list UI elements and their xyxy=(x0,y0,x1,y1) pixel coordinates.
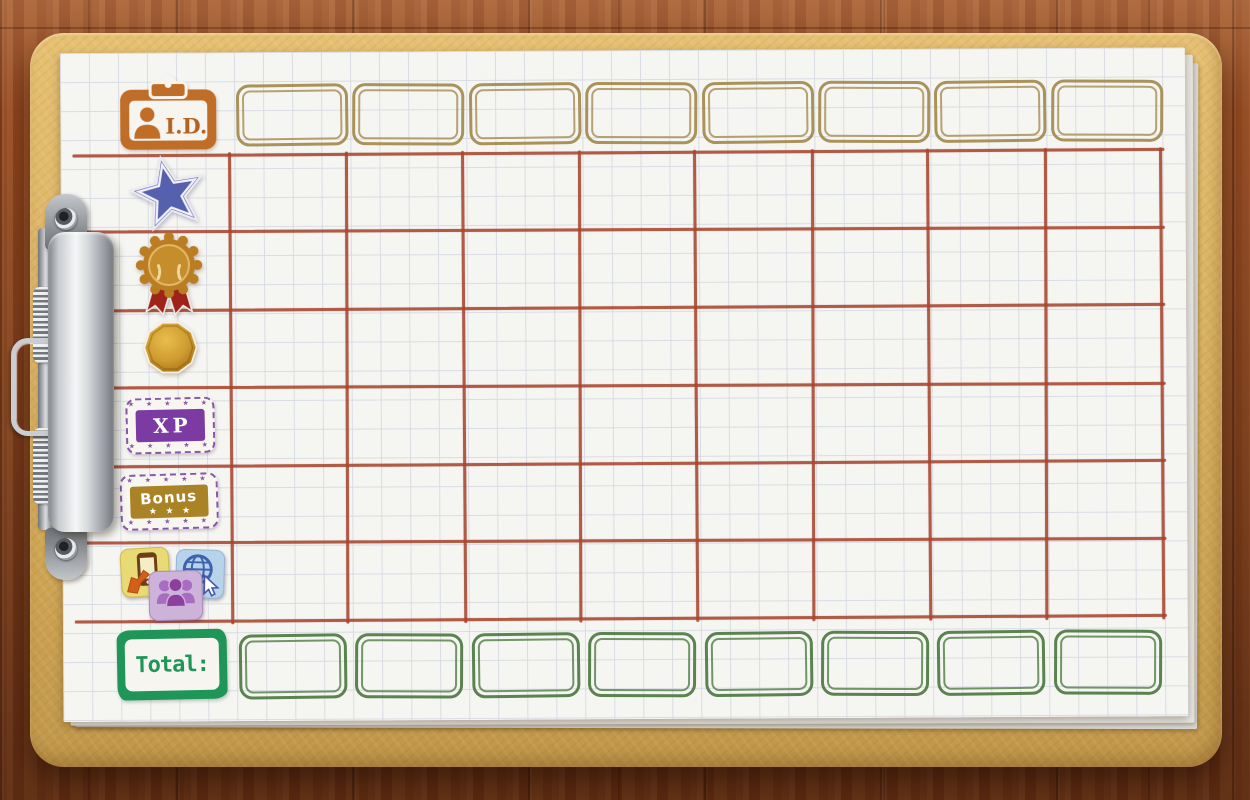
score-cell-apps-col1[interactable] xyxy=(233,544,346,618)
screen: { "board": { "columns": 8, "header_row":… xyxy=(0,0,1250,800)
id-badge-icon: I.D. xyxy=(116,74,220,153)
score-cell-medal-col8[interactable] xyxy=(1047,229,1160,303)
total-score-box-value xyxy=(1057,633,1159,692)
score-cell-apps-col4[interactable] xyxy=(583,542,696,616)
xp-frame-stars-bottom: ★ ★ ★ ★ ★ xyxy=(129,442,213,452)
score-cell-xp-col1[interactable] xyxy=(233,389,346,463)
score-cell-coins-col5[interactable] xyxy=(698,309,811,383)
score-cell-coins-col4[interactable] xyxy=(581,309,694,383)
score-cell-xp-col7[interactable] xyxy=(931,385,1044,459)
score-cell-xp-col6[interactable] xyxy=(815,386,928,460)
score-cell-xp-col5[interactable] xyxy=(698,386,811,460)
score-cell-bonus-col3[interactable] xyxy=(466,465,579,539)
score-cell-stars-col2[interactable] xyxy=(348,155,461,229)
score-grid-lines xyxy=(60,47,1185,53)
score-cell-apps-col2[interactable] xyxy=(350,544,463,618)
player-name-box-value xyxy=(937,83,1044,140)
group-people-icon xyxy=(149,571,202,620)
total-score-box-value xyxy=(591,635,693,694)
score-cell-apps-col7[interactable] xyxy=(932,541,1045,615)
score-cell-bonus-col7[interactable] xyxy=(931,463,1044,537)
total-row xyxy=(60,47,1185,53)
score-cell-medal-col1[interactable] xyxy=(232,233,345,307)
score-cell-bonus-col2[interactable] xyxy=(349,466,462,540)
group-people-stamp xyxy=(148,570,203,621)
clipboard: I.D. xyxy=(30,33,1222,767)
total-score-box-col7[interactable] xyxy=(937,630,1046,696)
score-cell-medal-col5[interactable] xyxy=(697,231,810,305)
clip-rivet-top xyxy=(55,208,77,230)
player-name-box-col1[interactable] xyxy=(236,83,349,146)
player-name-box-value xyxy=(1054,82,1160,138)
score-cell-coins-col3[interactable] xyxy=(465,310,578,384)
coin-icon xyxy=(141,318,199,376)
score-cell-coins-col7[interactable] xyxy=(931,307,1044,381)
score-cell-medal-col4[interactable] xyxy=(581,232,694,306)
player-name-box-col3[interactable] xyxy=(469,82,582,145)
total-score-box-value xyxy=(824,634,926,693)
player-name-box-col2[interactable] xyxy=(353,83,465,145)
score-cell-apps-col3[interactable] xyxy=(466,543,579,617)
total-score-box-col1[interactable] xyxy=(239,633,348,699)
score-cell-xp-col3[interactable] xyxy=(465,388,578,462)
player-name-box-value xyxy=(704,84,811,141)
player-name-box-value xyxy=(472,85,579,142)
score-cell-apps-col6[interactable] xyxy=(815,541,928,615)
xp-label: XP xyxy=(135,409,205,443)
score-cell-coins-col2[interactable] xyxy=(349,310,462,384)
clip-tab-bottom xyxy=(45,528,87,580)
score-cell-medal-col7[interactable] xyxy=(930,230,1043,304)
clip-rivet-bottom xyxy=(55,538,77,560)
player-name-box-value xyxy=(588,85,694,141)
score-cell-coins-col6[interactable] xyxy=(814,308,927,382)
player-name-row xyxy=(60,47,1185,53)
paper-stack: I.D. xyxy=(30,27,1226,767)
score-cell-medal-col2[interactable] xyxy=(348,233,461,307)
player-name-box-value xyxy=(356,86,462,142)
player-name-box-col4[interactable] xyxy=(585,82,697,144)
score-cell-stars-col3[interactable] xyxy=(464,154,577,228)
clip-bar xyxy=(48,232,114,532)
score-cell-bonus-col5[interactable] xyxy=(699,464,812,538)
score-cell-stars-col4[interactable] xyxy=(581,154,694,228)
score-grid-cells xyxy=(60,47,1185,53)
total-score-box-value xyxy=(475,635,578,695)
total-score-box-col8[interactable] xyxy=(1054,629,1162,694)
total-score-box-value xyxy=(940,633,1043,693)
player-name-box-col7[interactable] xyxy=(934,80,1047,143)
score-cell-stars-col8[interactable] xyxy=(1046,151,1159,225)
score-sheet: I.D. xyxy=(60,47,1188,722)
total-score-box-col4[interactable] xyxy=(588,632,696,697)
score-cell-medal-col3[interactable] xyxy=(465,232,578,306)
player-name-box-value xyxy=(821,84,927,140)
score-cell-bonus-col1[interactable] xyxy=(233,466,346,540)
id-badge-label: I.D. xyxy=(165,113,207,138)
total-score-box-col3[interactable] xyxy=(471,632,580,698)
player-name-box-col8[interactable] xyxy=(1051,79,1163,141)
score-cell-apps-col5[interactable] xyxy=(699,542,812,616)
total-score-box-col2[interactable] xyxy=(355,633,463,698)
score-cell-coins-col1[interactable] xyxy=(232,311,345,385)
total-score-box-value xyxy=(707,634,810,694)
total-label: Total: xyxy=(125,638,220,692)
score-cell-stars-col1[interactable] xyxy=(231,156,344,230)
clipboard-clip xyxy=(30,192,140,584)
player-name-box-col5[interactable] xyxy=(701,81,814,144)
bonus-frame-stars-bottom: ★ ★ ★ ★ ★ xyxy=(128,517,212,528)
score-cell-xp-col8[interactable] xyxy=(1047,384,1160,458)
id-badge-stamp: I.D. xyxy=(116,74,220,153)
bonus-label: Bonus xyxy=(140,486,198,508)
total-score-box-value xyxy=(358,636,460,695)
score-cell-apps-col8[interactable] xyxy=(1048,540,1161,614)
score-cell-stars-col7[interactable] xyxy=(930,152,1043,226)
score-cell-xp-col4[interactable] xyxy=(582,387,695,461)
total-score-box-value xyxy=(242,636,345,696)
score-cell-xp-col2[interactable] xyxy=(349,388,462,462)
player-name-box-value xyxy=(239,86,346,143)
score-cell-coins-col8[interactable] xyxy=(1047,307,1160,381)
score-cell-bonus-col6[interactable] xyxy=(815,463,928,537)
score-cell-bonus-col4[interactable] xyxy=(582,465,695,539)
score-cell-bonus-col8[interactable] xyxy=(1048,462,1161,536)
score-cell-medal-col6[interactable] xyxy=(814,230,927,304)
coin-row-header xyxy=(141,318,199,376)
score-cell-stars-col6[interactable] xyxy=(813,153,926,227)
total-stamp: Total: xyxy=(116,629,227,701)
total-score-box-col6[interactable] xyxy=(821,631,929,696)
player-name-box-col6[interactable] xyxy=(818,81,930,143)
total-score-box-col5[interactable] xyxy=(704,631,813,697)
score-cell-stars-col5[interactable] xyxy=(697,153,810,227)
